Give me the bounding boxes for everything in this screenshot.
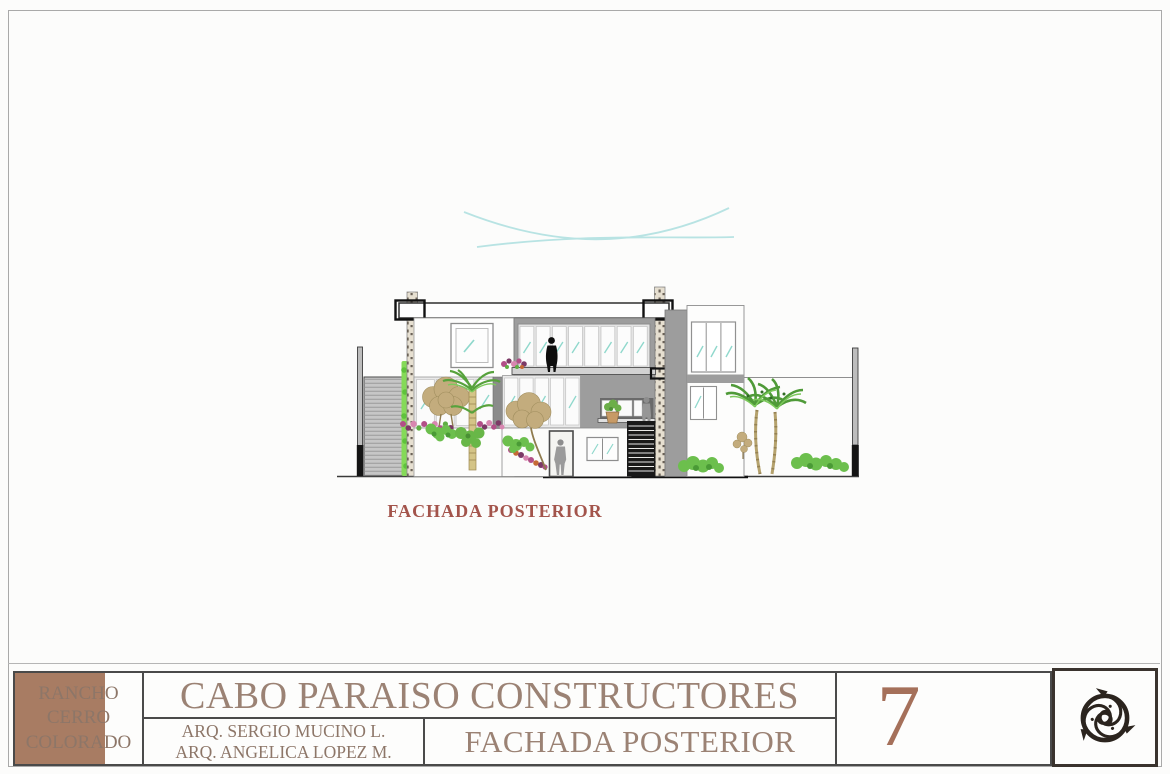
architectural-sheet: FACHADA POSTERIOR RANCHO CERRO COLORADO … xyxy=(0,0,1170,774)
elevation-drawing xyxy=(330,185,870,495)
window-tower-lower xyxy=(691,387,717,420)
company-logo xyxy=(1052,668,1158,767)
wall-gray-right xyxy=(665,310,687,477)
project-name-cell: RANCHO CERRO COLORADO xyxy=(15,673,144,764)
architect-name: ARQ. ANGELICA LOPEZ M. xyxy=(144,742,423,763)
stair-dark xyxy=(627,421,656,477)
window-band-upper xyxy=(518,324,650,369)
window-tower-upper xyxy=(692,322,736,372)
boundary-post-right xyxy=(852,348,859,476)
architects-cell: ARQ. SERGIO MUCINO L. ARQ. ANGELICA LOPE… xyxy=(144,719,425,764)
tower-right xyxy=(687,306,744,477)
window-entry-small xyxy=(587,438,618,461)
bush-far-right xyxy=(791,453,849,472)
boundary-wall-left xyxy=(357,347,405,476)
project-line: CERRO xyxy=(15,706,142,730)
roof-parapet xyxy=(396,301,673,320)
architect-name: ARQ. SERGIO MUCINO L. xyxy=(144,721,423,742)
divider-line xyxy=(8,663,1160,664)
drawing-label: FACHADA POSTERIOR xyxy=(350,501,640,522)
title-block: RANCHO CERRO COLORADO CABO PARAISO CONST… xyxy=(13,671,1052,766)
project-line: RANCHO xyxy=(15,682,142,706)
sheet-number: 7 xyxy=(835,673,960,764)
company-name: CABO PARAISO CONSTRUCTORES xyxy=(144,673,835,719)
sheet-title: FACHADA POSTERIOR xyxy=(425,719,835,764)
sky-lines-icon xyxy=(464,208,734,247)
balcony-ledge xyxy=(512,368,656,375)
fish-triskelion-logo-icon xyxy=(1066,679,1144,757)
project-line: COLORADO xyxy=(15,731,142,755)
